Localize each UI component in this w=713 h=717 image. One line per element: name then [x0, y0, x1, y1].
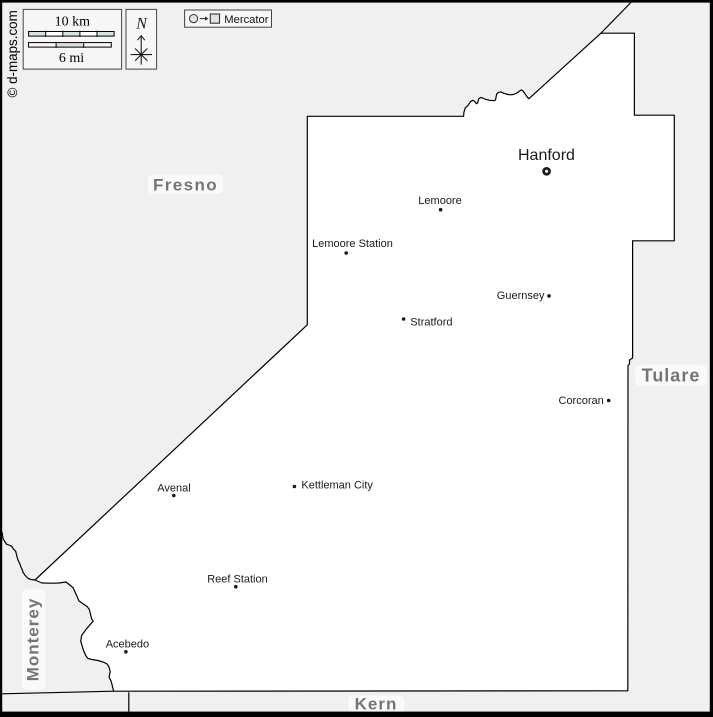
svg-text:Monterey: Monterey: [24, 598, 43, 682]
svg-text:6 mi: 6 mi: [59, 51, 84, 66]
svg-text:Lemoore: Lemoore: [418, 195, 461, 207]
svg-text:Fresno: Fresno: [153, 176, 218, 195]
svg-text:Tulare: Tulare: [642, 366, 701, 386]
svg-text:Stratford: Stratford: [410, 317, 452, 329]
svg-text:Corcoran: Corcoran: [559, 395, 604, 407]
svg-text:© d-maps.com: © d-maps.com: [5, 10, 20, 97]
svg-text:Hanford: Hanford: [518, 147, 575, 164]
svg-text:10 km: 10 km: [55, 14, 91, 29]
svg-text:N: N: [135, 15, 148, 32]
svg-text:Kettleman City: Kettleman City: [301, 480, 373, 492]
svg-text:Avenal: Avenal: [157, 482, 190, 494]
svg-text:Kern: Kern: [355, 695, 398, 714]
svg-text:Acebedo: Acebedo: [106, 639, 149, 651]
svg-text:Reef Station: Reef Station: [207, 573, 268, 585]
svg-text:Lemoore Station: Lemoore Station: [312, 238, 393, 250]
svg-text:Mercator: Mercator: [224, 14, 268, 26]
svg-text:Guernsey: Guernsey: [497, 290, 545, 302]
